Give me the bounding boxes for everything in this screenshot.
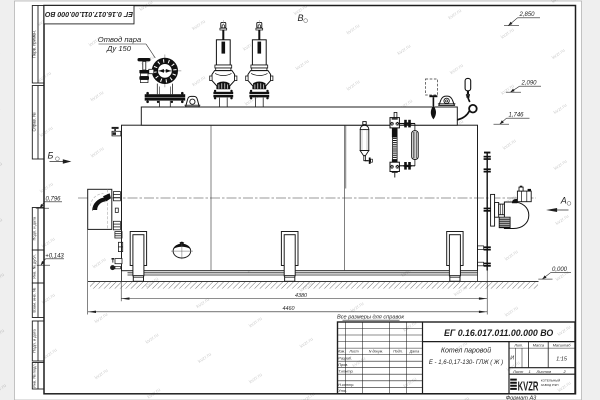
svg-text:Котел паровой: Котел паровой (441, 346, 491, 354)
svg-text:Лист: Лист (512, 369, 524, 374)
svg-text:2,850: 2,850 (518, 12, 535, 18)
svg-text:4460: 4460 (283, 306, 295, 312)
svg-text:Лит.: Лит. (513, 343, 523, 347)
svg-text:Лист: Лист (348, 350, 358, 354)
svg-text:Утв.: Утв. (338, 389, 347, 393)
svg-text:Все размеры для справок: Все размеры для справок (337, 315, 404, 321)
svg-text:Подп.: Подп. (393, 350, 403, 354)
svg-text:0,000: 0,000 (552, 267, 568, 273)
svg-text:И: И (510, 355, 514, 361)
svg-text:Справ. №: Справ. № (32, 112, 37, 132)
svg-text:Н.контр.: Н.контр. (338, 383, 354, 387)
svg-text:Подп. и дата: Подп. и дата (32, 216, 37, 240)
svg-text:1,746: 1,746 (508, 113, 524, 119)
svg-text:KVZR: KVZR (518, 379, 539, 394)
svg-text:ЕГ 0.16.017.011.00.000 ВО: ЕГ 0.16.017.011.00.000 ВО (44, 10, 133, 18)
svg-text:Масштаб: Масштаб (553, 343, 572, 347)
svg-text:А: А (560, 196, 567, 206)
svg-text:Б: Б (48, 150, 54, 160)
svg-text:Отвод пара: Отвод пара (98, 35, 141, 44)
svg-text:1:15: 1:15 (556, 356, 568, 362)
svg-text:Е - 1,6-0,17-130- ГЛЖ ( Ж ): Е - 1,6-0,17-130- ГЛЖ ( Ж ) (429, 360, 503, 366)
svg-text:Подп. и дата: Подп. и дата (32, 328, 37, 352)
svg-text:Перв. примен.: Перв. примен. (32, 30, 37, 58)
svg-text:Инв. № подл.: Инв. № подл. (32, 363, 37, 388)
svg-text:Взам. инв. №: Взам. инв. № (32, 288, 37, 313)
svg-text:ЕГ 0.16.017.011.00.000 ВО: ЕГ 0.16.017.011.00.000 ВО (444, 328, 553, 338)
svg-text:N докум.: N докум. (369, 350, 384, 354)
svg-text:2,090: 2,090 (520, 81, 537, 87)
svg-text:4380: 4380 (295, 293, 307, 299)
svg-text:Дата: Дата (409, 350, 419, 354)
svg-text:0,796: 0,796 (45, 196, 61, 202)
svg-text:Масса: Масса (533, 343, 544, 347)
svg-text:Листов: Листов (536, 369, 552, 374)
svg-text:Формат А3: Формат А3 (506, 395, 537, 400)
svg-text:Т.контр.: Т.контр. (338, 370, 353, 374)
svg-text:ЗАВОД РЭП: ЗАВОД РЭП (541, 383, 559, 387)
svg-text:Ду 150: Ду 150 (106, 44, 132, 53)
svg-text:1: 1 (529, 369, 531, 374)
svg-text:+0,143: +0,143 (45, 253, 64, 259)
svg-text:В: В (298, 13, 304, 23)
svg-text:Пров.: Пров. (338, 363, 348, 367)
svg-text:Инв. № дубл.: Инв. № дубл. (32, 254, 37, 279)
svg-text:Разраб.: Разраб. (338, 357, 352, 361)
svg-text:Изм.: Изм. (338, 350, 346, 354)
